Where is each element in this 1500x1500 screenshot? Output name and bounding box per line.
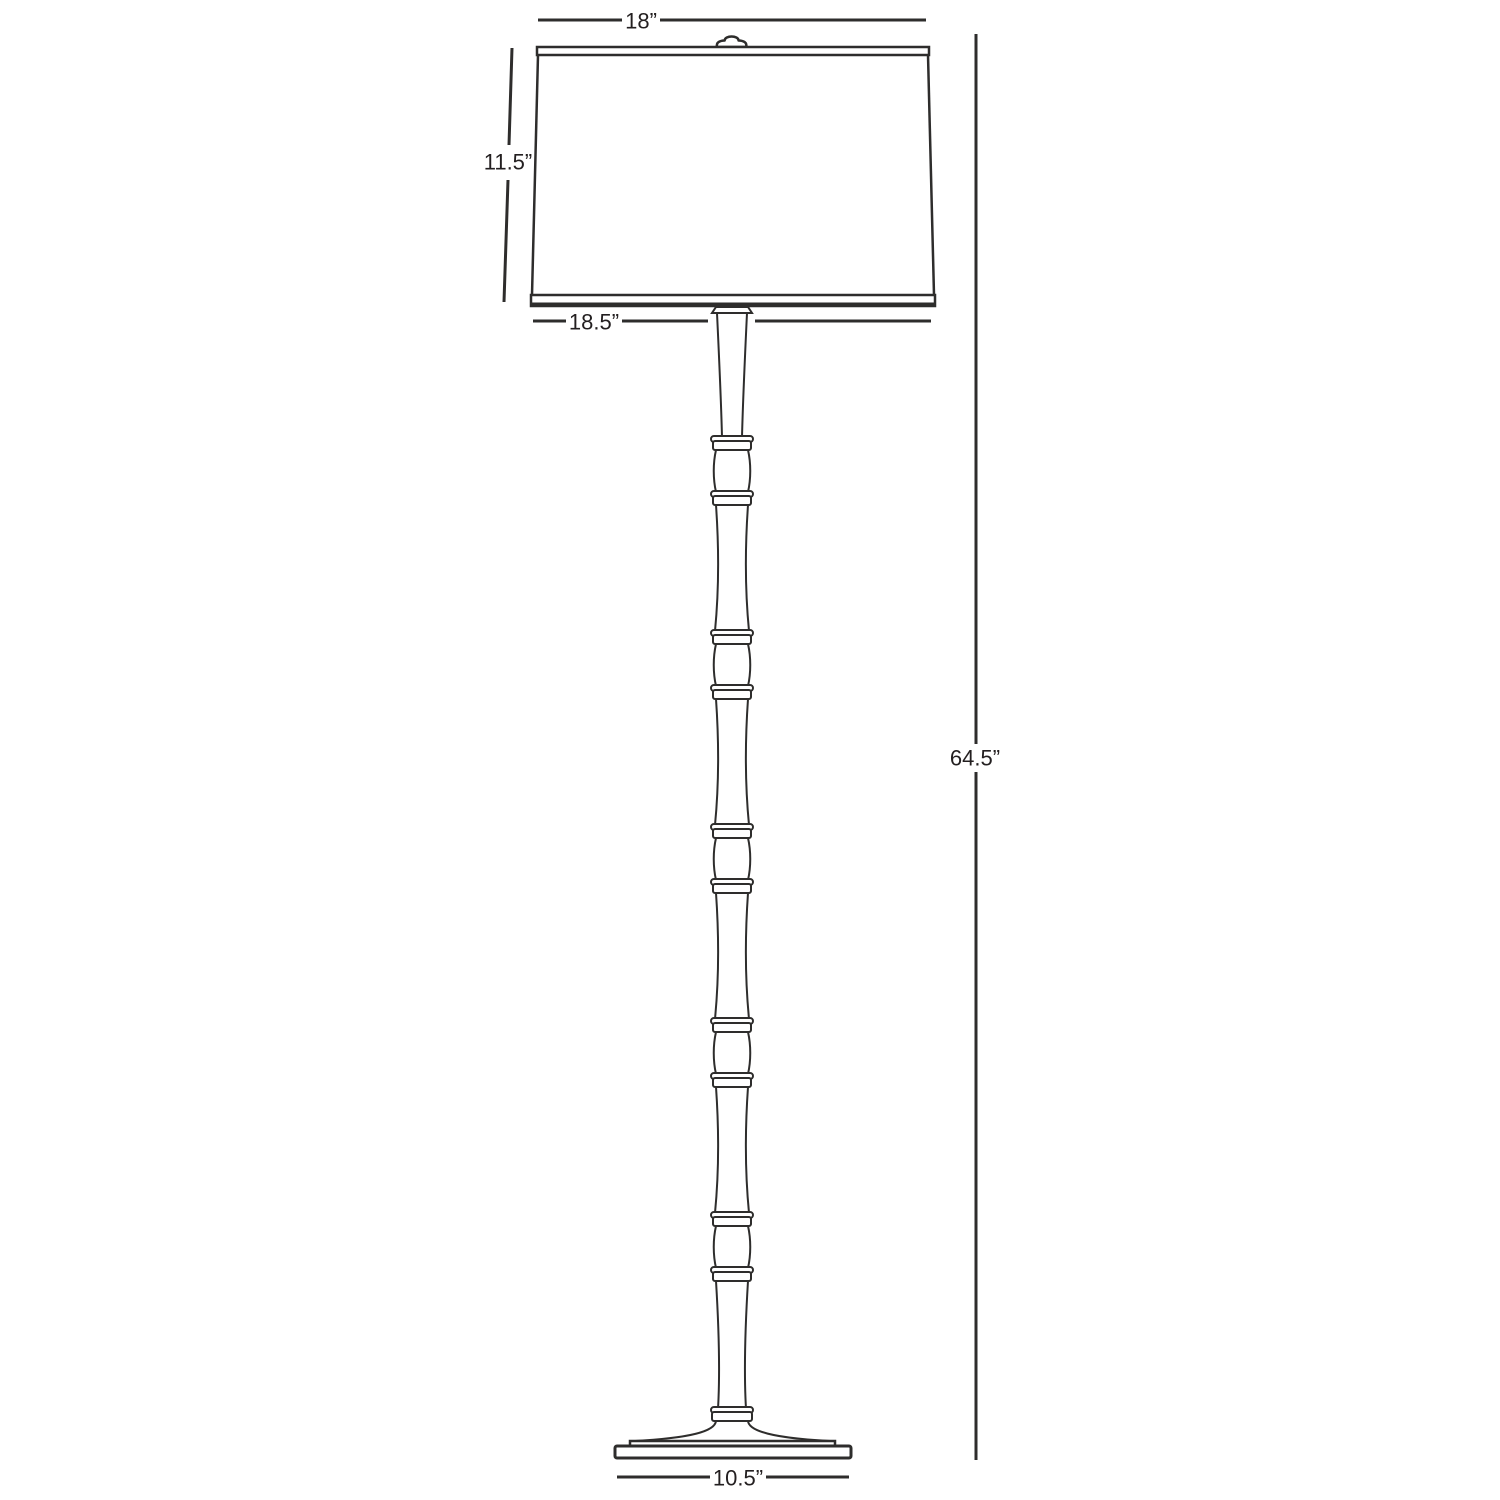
dimension-label-base-width: 10.5” bbox=[713, 1466, 763, 1491]
dimension-label-overall-height: 64.5” bbox=[950, 746, 1000, 771]
bamboo-node bbox=[711, 1212, 753, 1226]
bamboo-node bbox=[711, 1267, 753, 1281]
lamp-shade bbox=[531, 37, 935, 306]
stem-segment bbox=[715, 699, 749, 825]
stem-segment bbox=[716, 1281, 748, 1409]
bamboo-node bbox=[711, 491, 753, 505]
bamboo-node bbox=[711, 879, 753, 893]
floor-lamp-drawing bbox=[531, 37, 935, 1458]
bamboo-node bbox=[711, 685, 753, 699]
shade-top-band bbox=[537, 47, 929, 55]
shade-left-edge bbox=[532, 55, 538, 295]
bamboo-node bbox=[711, 630, 753, 644]
shade-right-edge bbox=[928, 55, 934, 295]
finial bbox=[717, 37, 747, 47]
lamp-base bbox=[615, 1407, 851, 1458]
stem-segment bbox=[714, 1226, 751, 1268]
dimension-label-shade-height: 11.5” bbox=[484, 150, 533, 175]
dimension-shade-top-width: 18” bbox=[538, 9, 926, 34]
dimension-base-width: 10.5” bbox=[617, 1466, 849, 1491]
dimension-label-shade-bottom-width: 18.5” bbox=[569, 310, 619, 335]
stem-segment bbox=[714, 644, 751, 686]
stem-segment bbox=[715, 893, 749, 1019]
stem-segment bbox=[714, 838, 751, 880]
bamboo-node bbox=[711, 1018, 753, 1032]
bamboo-node bbox=[711, 436, 753, 450]
base-collar bbox=[711, 1407, 753, 1421]
bamboo-node bbox=[711, 1073, 753, 1087]
stem-segment bbox=[715, 505, 749, 631]
dimension-shade-height: 11.5” bbox=[484, 48, 533, 302]
dimension-line-shade-height bbox=[504, 48, 512, 302]
bamboo-node bbox=[711, 824, 753, 838]
lamp-stem bbox=[711, 307, 753, 1409]
lamp-dimension-diagram: 18” 11.5” 18.5” 64.5” 10.5” bbox=[0, 0, 1500, 1500]
stem-segment bbox=[715, 1087, 749, 1213]
dimension-label-shade-top-width: 18” bbox=[625, 9, 657, 34]
stem-segment bbox=[714, 450, 751, 492]
dimension-overall-height: 64.5” bbox=[950, 34, 1000, 1460]
stem-segment bbox=[714, 1032, 751, 1074]
base-plinth bbox=[615, 1446, 851, 1458]
stem-neck bbox=[717, 313, 747, 437]
base-flare bbox=[634, 1421, 830, 1441]
